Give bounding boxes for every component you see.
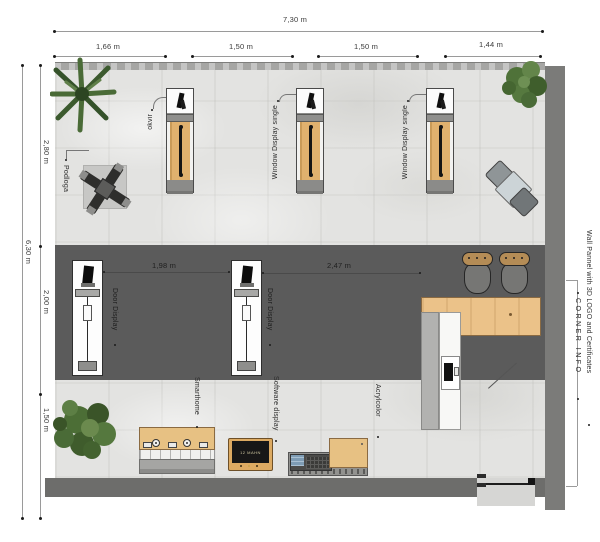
dim-line	[55, 31, 543, 32]
software-display-label: Software display	[272, 376, 279, 431]
acrylcolor-label: Acrylcolor	[374, 384, 381, 417]
door-display-label-2: Door Display	[266, 288, 273, 330]
gadget-box	[143, 442, 152, 448]
right-wall	[545, 66, 565, 510]
plant-icon	[497, 56, 549, 118]
door-leaf-line	[479, 483, 531, 485]
smarthome-table	[139, 427, 215, 474]
window-display-single-2	[426, 88, 454, 193]
corner-info-label: CORNER INFO	[574, 298, 581, 375]
dim-total-height: 6,30 m	[24, 240, 33, 264]
door-display-label-1: Door Display	[111, 288, 118, 330]
software-display-tv: 12 MAHN	[228, 438, 273, 471]
plant-bottom-left	[48, 390, 128, 474]
gadget-box	[168, 442, 177, 448]
dim-seg2: 1,50 m	[229, 42, 253, 51]
dim-seg1: 1,66 m	[96, 42, 120, 51]
gadget-box	[199, 442, 208, 448]
window-display-single-1	[296, 88, 324, 193]
dim-lseg2: 2,00 m	[42, 290, 51, 314]
dim-door-gap: 1,98 m	[152, 261, 176, 270]
door-display-2	[231, 260, 262, 376]
window-display-label-1: Window Display single	[272, 105, 279, 179]
okvir-label: okvir	[147, 114, 154, 130]
dim-seg3: 1,50 m	[354, 42, 378, 51]
tv-screen-text: 12 MAHN	[240, 450, 261, 455]
counter-side-panel	[421, 312, 439, 430]
demo-screen	[291, 455, 304, 466]
counter-chair-2	[498, 252, 532, 295]
demo-keyboard	[306, 457, 331, 469]
window-display-leader-2	[409, 94, 426, 102]
counter-chair-1	[461, 252, 495, 295]
dim-seg4: 1,44 m	[479, 40, 503, 49]
plant-icon	[48, 390, 128, 474]
plant-icon	[50, 56, 120, 138]
wood-knot	[509, 313, 512, 316]
plant-top-right	[497, 56, 549, 118]
wall-pannel-label: Wall Pannel with 3D LOGO and Certificate…	[585, 230, 592, 373]
podloga-leader	[66, 150, 89, 159]
door-hinge	[477, 483, 486, 487]
demo-wood-box	[329, 438, 368, 468]
window-display-label-2: Window Display single	[402, 105, 409, 179]
dim-line-left-overall	[22, 66, 23, 519]
counter-appliance	[441, 356, 460, 390]
door-display-1	[72, 260, 103, 376]
demo-unit	[288, 438, 368, 476]
plant-top-left	[50, 56, 120, 138]
window-display-leader-1	[279, 94, 296, 102]
podloga-label: Podloga	[62, 165, 69, 192]
dim-total-width: 7,30 m	[283, 15, 307, 24]
door-hinge	[477, 474, 486, 478]
door-stop	[528, 478, 535, 485]
window-display-okvir	[166, 88, 194, 193]
floor-plan: 7,30 m 1,66 m 1,50 m 1,50 m 1,44 m 6,30 …	[0, 0, 600, 542]
smarthome-label: Smarthome	[193, 377, 200, 415]
top-window-wall	[55, 62, 545, 70]
dim-line-left-segments	[40, 66, 41, 519]
bottom-wall	[45, 478, 545, 497]
tv-screen: 12 MAHN	[232, 441, 269, 463]
dim-lseg1: 2,80 m	[42, 140, 51, 164]
dim-counter-gap: 2,47 m	[327, 261, 351, 270]
